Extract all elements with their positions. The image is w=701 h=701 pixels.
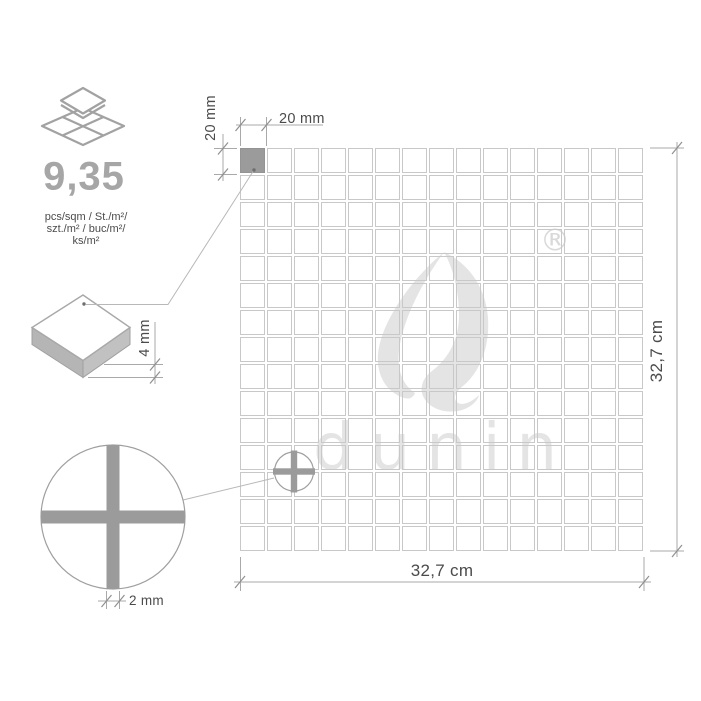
mosaic-cell (294, 418, 319, 443)
product-spec-sheet: dunin ® (0, 0, 701, 701)
mosaic-cell (375, 202, 400, 227)
mosaic-cell (402, 310, 427, 335)
mosaic-cell (321, 337, 346, 362)
mosaic-cell (537, 499, 562, 524)
mosaic-cell (240, 256, 265, 281)
mosaic-cell (483, 283, 508, 308)
mosaic-cell (429, 418, 454, 443)
mosaic-cell (618, 310, 643, 335)
mosaic-cell (321, 229, 346, 254)
mosaic-cell (537, 310, 562, 335)
mosaic-cell (618, 202, 643, 227)
mosaic-cell (294, 526, 319, 551)
mosaic-cell (591, 202, 616, 227)
mosaic-cell (294, 391, 319, 416)
mosaic-cell (456, 526, 481, 551)
mosaic-cell (348, 202, 373, 227)
mosaic-cell (510, 418, 535, 443)
mosaic-cell (375, 445, 400, 470)
mosaic-cell (618, 175, 643, 200)
mosaic-cell (537, 445, 562, 470)
mosaic-cell (429, 175, 454, 200)
mosaic-cell (348, 445, 373, 470)
mosaic-cell (267, 283, 292, 308)
mosaic-cell (510, 391, 535, 416)
mosaic-cell (483, 391, 508, 416)
mosaic-cell (321, 418, 346, 443)
mosaic-cell (537, 418, 562, 443)
mosaic-cell (402, 364, 427, 389)
mosaic-cell (456, 148, 481, 173)
mosaic-cell (348, 175, 373, 200)
mosaic-cell (267, 229, 292, 254)
mosaic-cell (348, 148, 373, 173)
mosaic-cell (591, 499, 616, 524)
mosaic-cell (510, 229, 535, 254)
mosaic-cell (429, 148, 454, 173)
mosaic-cell (510, 337, 535, 362)
mosaic-cell (429, 337, 454, 362)
mosaic-cell (348, 283, 373, 308)
mosaic-cell (537, 472, 562, 497)
mosaic-cell (537, 283, 562, 308)
mosaic-cell (294, 148, 319, 173)
mosaic-cell (267, 391, 292, 416)
mosaic-cell (294, 256, 319, 281)
mosaic-cell (402, 337, 427, 362)
mosaic-cell (375, 418, 400, 443)
mosaic-cell (483, 472, 508, 497)
mosaic-cell (402, 283, 427, 308)
mosaic-cell (618, 148, 643, 173)
mosaic-cell (456, 499, 481, 524)
mosaic-cell (537, 229, 562, 254)
mosaic-cell (375, 364, 400, 389)
mosaic-cell (618, 364, 643, 389)
mosaic-cell (402, 499, 427, 524)
mosaic-cell (348, 526, 373, 551)
mosaic-cell (348, 499, 373, 524)
mosaic-cell (240, 445, 265, 470)
mosaic-cell (537, 337, 562, 362)
mosaic-cell (240, 364, 265, 389)
mosaic-cell (294, 175, 319, 200)
mosaic-cell (294, 337, 319, 362)
mosaic-cell (510, 256, 535, 281)
mosaic-cell (537, 526, 562, 551)
mosaic-cell (456, 391, 481, 416)
mosaic-cell (591, 445, 616, 470)
mosaic-cell (483, 526, 508, 551)
mosaic-cell (267, 364, 292, 389)
mosaic-cell (294, 445, 319, 470)
mosaic-cell (375, 337, 400, 362)
mosaic-cell (240, 337, 265, 362)
mosaic-cell (402, 202, 427, 227)
mosaic-cell (483, 364, 508, 389)
mosaic-cell (240, 310, 265, 335)
mosaic-cell (483, 256, 508, 281)
mosaic-cell (402, 418, 427, 443)
mosaic-cell (510, 310, 535, 335)
mosaic-cell (564, 148, 589, 173)
mosaic-cell (267, 445, 292, 470)
mosaic-cell (483, 337, 508, 362)
mosaic-cell (618, 472, 643, 497)
mosaic-cell (564, 175, 589, 200)
mosaic-cell (591, 310, 616, 335)
mosaic-cell (510, 148, 535, 173)
mosaic-cell (618, 229, 643, 254)
mosaic-cell (348, 472, 373, 497)
mosaic-cell (321, 472, 346, 497)
mosaic-cell (267, 526, 292, 551)
mosaic-cell (294, 499, 319, 524)
mosaic-cell (564, 391, 589, 416)
mosaic-cell (267, 418, 292, 443)
mosaic-cell (375, 148, 400, 173)
mosaic-cell (294, 229, 319, 254)
mosaic-cell (618, 526, 643, 551)
mosaic-cell (483, 229, 508, 254)
mosaic-cell (375, 391, 400, 416)
mosaic-cell (537, 391, 562, 416)
mosaic-cell (267, 175, 292, 200)
mosaic-cell (429, 310, 454, 335)
mosaic-cell (456, 364, 481, 389)
mosaic-cell (510, 499, 535, 524)
mosaic-cell (564, 256, 589, 281)
mosaic-cell (429, 526, 454, 551)
mosaic-cell (348, 229, 373, 254)
mosaic-cell (321, 445, 346, 470)
mosaic-cell (591, 283, 616, 308)
mosaic-cell (348, 364, 373, 389)
mosaic-cell (618, 337, 643, 362)
mosaic-cell (537, 202, 562, 227)
mosaic-cell (591, 391, 616, 416)
mosaic-cell (375, 283, 400, 308)
mosaic-cell (294, 283, 319, 308)
mosaic-cell (294, 472, 319, 497)
mosaic-cell (591, 418, 616, 443)
mosaic-cell (321, 526, 346, 551)
mosaic-cell (375, 256, 400, 281)
mosaic-cell (564, 472, 589, 497)
mosaic-cell (240, 283, 265, 308)
mosaic-cell (456, 418, 481, 443)
mosaic-cell (537, 256, 562, 281)
mosaic-cell (402, 526, 427, 551)
mosaic-cell (537, 175, 562, 200)
mosaic-cell (348, 310, 373, 335)
mosaic-cell (591, 364, 616, 389)
mosaic-cell (456, 310, 481, 335)
mosaic-cell (591, 526, 616, 551)
mosaic-cell (618, 283, 643, 308)
mosaic-cell (402, 445, 427, 470)
mosaic-cell (240, 229, 265, 254)
mosaic-cell (429, 364, 454, 389)
mosaic-cell (456, 229, 481, 254)
mosaic-cell (240, 472, 265, 497)
mosaic-cell (375, 229, 400, 254)
mosaic-cell (321, 364, 346, 389)
mosaic-cell (510, 175, 535, 200)
mosaic-cell (240, 526, 265, 551)
mosaic-cell (375, 526, 400, 551)
mosaic-cell (429, 445, 454, 470)
mosaic-cell (564, 202, 589, 227)
mosaic-cell (564, 418, 589, 443)
mosaic-cell (267, 472, 292, 497)
mosaic-cell (402, 472, 427, 497)
mosaic-cell (591, 175, 616, 200)
mosaic-cell (267, 202, 292, 227)
mosaic-cell (429, 229, 454, 254)
mosaic-cell (564, 526, 589, 551)
mosaic-cell (618, 256, 643, 281)
mosaic-cell (402, 175, 427, 200)
mosaic-cell (483, 418, 508, 443)
mosaic-cell (321, 202, 346, 227)
mosaic-sheet-grid (240, 148, 643, 551)
mosaic-cell (240, 391, 265, 416)
mosaic-cell (375, 499, 400, 524)
mosaic-cell (483, 202, 508, 227)
mosaic-cell (348, 256, 373, 281)
mosaic-cell (402, 148, 427, 173)
mosaic-cell (321, 283, 346, 308)
mosaic-cell (429, 472, 454, 497)
mosaic-cell (294, 364, 319, 389)
mosaic-cell (321, 148, 346, 173)
mosaic-cell (375, 310, 400, 335)
mosaic-cell (618, 445, 643, 470)
mosaic-cell (510, 283, 535, 308)
mosaic-cell (402, 391, 427, 416)
mosaic-cell (483, 445, 508, 470)
mosaic-cell (510, 445, 535, 470)
mosaic-cell (321, 310, 346, 335)
mosaic-cell (456, 283, 481, 308)
mosaic-cell (483, 175, 508, 200)
mosaic-cell (456, 256, 481, 281)
mosaic-cell (321, 175, 346, 200)
mosaic-cell (618, 418, 643, 443)
mosaic-cell (348, 337, 373, 362)
mosaic-cell (429, 499, 454, 524)
mosaic-cell (348, 391, 373, 416)
mosaic-cell (537, 148, 562, 173)
mosaic-cell (429, 391, 454, 416)
mosaic-cell (240, 418, 265, 443)
mosaic-cell (348, 418, 373, 443)
mosaic-cell (564, 499, 589, 524)
mosaic-cell (591, 148, 616, 173)
mosaic-cell (267, 337, 292, 362)
mosaic-cell (240, 175, 265, 200)
mosaic-cell (510, 526, 535, 551)
mosaic-cell (564, 229, 589, 254)
mosaic-cell (402, 256, 427, 281)
mosaic-cell (510, 364, 535, 389)
mosaic-cell (564, 337, 589, 362)
mosaic-cell (402, 229, 427, 254)
mosaic-cell (267, 310, 292, 335)
mosaic-cell (429, 256, 454, 281)
mosaic-cell (618, 391, 643, 416)
mosaic-cell (429, 283, 454, 308)
mosaic-cell (267, 499, 292, 524)
mosaic-cell (429, 202, 454, 227)
mosaic-cell (294, 310, 319, 335)
mosaic-cell (375, 472, 400, 497)
mosaic-cell (564, 364, 589, 389)
mosaic-cell (456, 472, 481, 497)
mosaic-cell (564, 310, 589, 335)
mosaic-cell (591, 256, 616, 281)
mosaic-cell (456, 337, 481, 362)
mosaic-cell (240, 202, 265, 227)
mosaic-cell (537, 364, 562, 389)
mosaic-cell (375, 175, 400, 200)
mosaic-cell (294, 202, 319, 227)
mosaic-cell (618, 499, 643, 524)
mosaic-cell (483, 148, 508, 173)
mosaic-cell (240, 499, 265, 524)
mosaic-cell (321, 499, 346, 524)
highlighted-chip-cell (240, 148, 265, 173)
mosaic-cell (591, 337, 616, 362)
mosaic-cell (456, 202, 481, 227)
mosaic-cell (483, 310, 508, 335)
mosaic-cell (510, 202, 535, 227)
mosaic-cell (267, 148, 292, 173)
mosaic-cell (510, 472, 535, 497)
mosaic-cell (564, 445, 589, 470)
mosaic-cell (591, 229, 616, 254)
mosaic-cell (267, 256, 292, 281)
mosaic-cell (483, 499, 508, 524)
mosaic-cell (321, 391, 346, 416)
mosaic-cell (456, 445, 481, 470)
mosaic-cell (456, 175, 481, 200)
mosaic-cell (564, 283, 589, 308)
mosaic-cell (321, 256, 346, 281)
mosaic-cell (591, 472, 616, 497)
